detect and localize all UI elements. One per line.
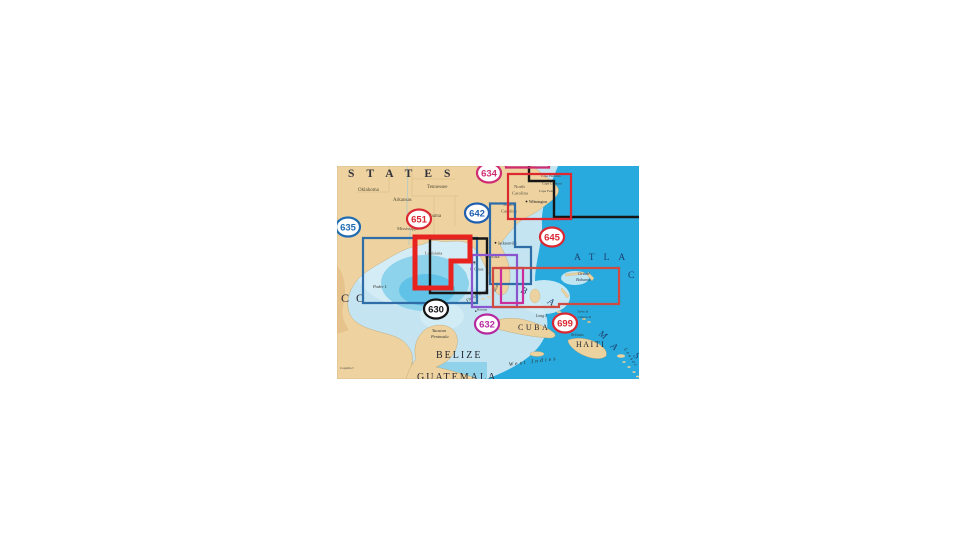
united-states-label: STATES bbox=[348, 168, 462, 180]
badge-630[interactable]: 630 bbox=[424, 300, 448, 319]
yucatan-label-2: Peninsula bbox=[430, 334, 449, 339]
badge-635[interactable]: 635 bbox=[337, 218, 360, 237]
city-dot bbox=[526, 201, 528, 203]
yucatan-label-1: Yucatan bbox=[432, 328, 447, 333]
badge-642[interactable]: 642 bbox=[465, 204, 489, 223]
city-dot bbox=[475, 311, 476, 312]
ocean-label: C bbox=[628, 271, 634, 281]
city-dot bbox=[495, 242, 497, 244]
badge-number: 634 bbox=[481, 168, 498, 179]
badge-number: 630 bbox=[428, 304, 444, 315]
grand-bahama-label-2: Bahama bbox=[576, 277, 591, 282]
padre-island-label: Padre I. bbox=[372, 284, 387, 289]
state-tennessee: Tennessee bbox=[427, 185, 448, 190]
cuba-label: CUBA bbox=[518, 323, 550, 332]
badge-number: 632 bbox=[479, 319, 495, 330]
chart-coverage-map: STATESCOOklahomaArkansasTennesseeAlabama… bbox=[337, 166, 639, 379]
state-oklahoma: Oklahoma bbox=[358, 188, 380, 193]
island-jamaica bbox=[530, 352, 544, 357]
belize-label: BELIZE bbox=[436, 350, 482, 361]
turks-label-1: Turks & bbox=[577, 310, 589, 314]
cape-fear-label: Cape Fear bbox=[539, 189, 554, 193]
badge-number: 645 bbox=[544, 232, 561, 243]
long-island-label: Long I. bbox=[535, 313, 548, 318]
city-wilmington: Wilmington bbox=[529, 200, 547, 204]
atlantic-label: ATLA bbox=[574, 253, 634, 263]
city-dot bbox=[474, 262, 475, 263]
great-bahama-bank bbox=[518, 280, 570, 314]
grand-bahama-label-1: Grand bbox=[578, 271, 590, 276]
badge-number: 635 bbox=[340, 222, 357, 233]
island-puerto-rico bbox=[617, 354, 625, 358]
state-north-carolina-2: Carolina bbox=[512, 191, 528, 196]
badge-number: 651 bbox=[411, 214, 428, 225]
badge-number: 642 bbox=[469, 208, 485, 219]
badge-634[interactable]: 634 bbox=[477, 166, 501, 183]
copalita-label: Copalita ▪ bbox=[340, 366, 354, 370]
state-north-carolina-1: North bbox=[514, 184, 525, 189]
product-image-page: STATESCOOklahomaArkansasTennesseeAlabama… bbox=[0, 0, 978, 550]
state-arkansas: Arkansas bbox=[393, 198, 412, 203]
guatemala-label: GUATEMALA bbox=[417, 372, 497, 379]
state-louisiana: Louisiana bbox=[425, 251, 442, 256]
badge-number: 699 bbox=[557, 318, 573, 329]
turks-label-2: Caicos Is bbox=[578, 315, 592, 319]
badge-651[interactable]: 651 bbox=[407, 210, 431, 229]
badge-645[interactable]: 645 bbox=[540, 228, 564, 247]
badge-699[interactable]: 699 bbox=[553, 314, 577, 333]
navionics-coverage-map-svg: STATESCOOklahomaArkansasTennesseeAlabama… bbox=[337, 166, 639, 379]
badge-632[interactable]: 632 bbox=[475, 315, 499, 334]
haiti-label: HAITI bbox=[576, 340, 605, 349]
st-louis-label: St-Louis bbox=[571, 333, 584, 337]
